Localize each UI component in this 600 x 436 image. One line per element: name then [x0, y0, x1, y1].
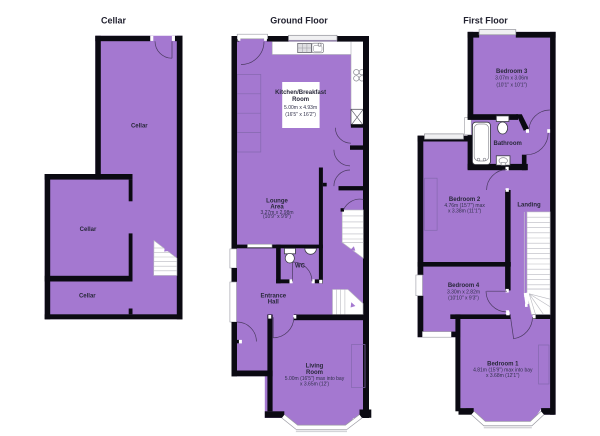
svg-text:5.00m x 4.93m: 5.00m x 4.93m	[284, 105, 317, 111]
svg-text:x 3.68m (12'1"): x 3.68m (12'1")	[486, 373, 520, 379]
svg-text:WC: WC	[295, 264, 306, 270]
svg-text:Kitchen/Breakfast: Kitchen/Breakfast	[275, 90, 326, 96]
svg-text:x 3.38m (11'1"): x 3.38m (11'1")	[448, 209, 482, 215]
svg-text:Cellar: Cellar	[79, 294, 96, 300]
svg-text:First Floor: First Floor	[463, 16, 508, 26]
svg-text:Cellar: Cellar	[80, 227, 97, 233]
svg-text:(10'1" x 10'1"): (10'1" x 10'1")	[496, 82, 527, 88]
svg-text:(10'10" x 9'3"): (10'10" x 9'3")	[448, 295, 479, 301]
svg-text:(16'5" x 16'2"): (16'5" x 16'2")	[285, 112, 316, 118]
svg-text:Ground Floor: Ground Floor	[270, 16, 328, 26]
svg-text:Cellar: Cellar	[101, 16, 127, 26]
svg-text:Hall: Hall	[268, 300, 279, 306]
svg-text:Cellar: Cellar	[131, 123, 148, 129]
svg-text:Bedroom 3: Bedroom 3	[496, 69, 528, 75]
svg-text:Bathroom: Bathroom	[494, 141, 522, 147]
svg-text:Bedroom 4: Bedroom 4	[448, 283, 480, 289]
svg-text:Room: Room	[292, 97, 309, 103]
svg-text:x 3.65m (12'): x 3.65m (12')	[300, 381, 329, 387]
svg-text:Landing: Landing	[517, 203, 541, 209]
svg-text:Entrance: Entrance	[260, 293, 286, 299]
svg-text:Bedroom 2: Bedroom 2	[449, 197, 481, 203]
svg-text:Living: Living	[306, 364, 324, 370]
svg-text:3.07m x 3.06m: 3.07m x 3.06m	[495, 76, 528, 82]
svg-text:(10'9" x 9'9"): (10'9" x 9'9")	[263, 214, 291, 220]
